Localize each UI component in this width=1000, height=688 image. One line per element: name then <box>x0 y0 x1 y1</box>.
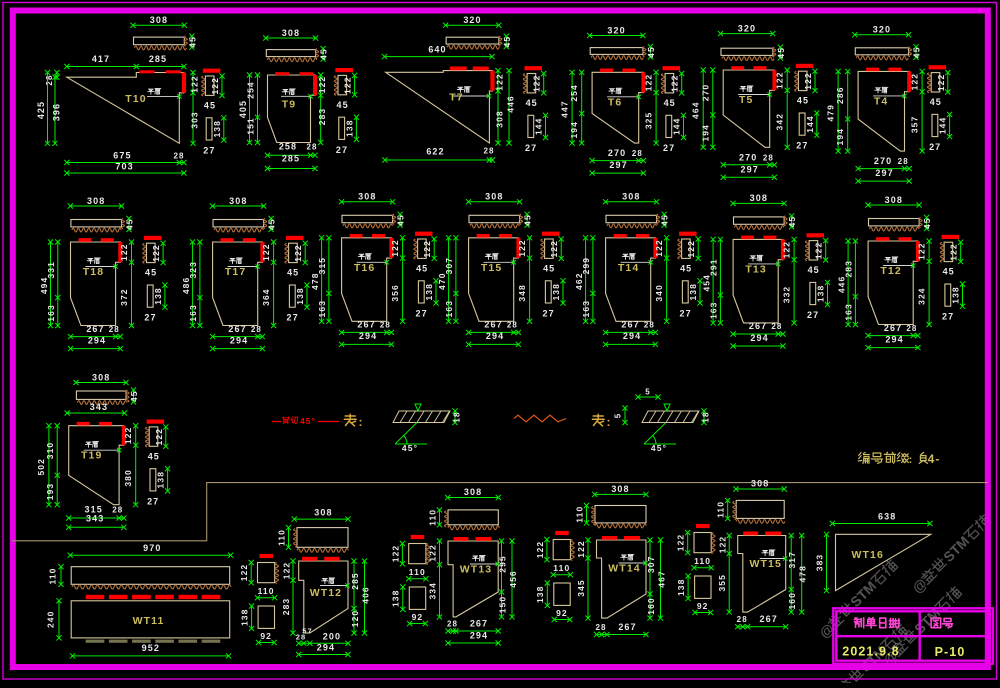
svg-text:295: 295 <box>498 555 508 572</box>
svg-text:T12: T12 <box>880 265 901 277</box>
svg-text:45: 45 <box>267 218 277 230</box>
svg-text:675: 675 <box>113 151 131 161</box>
svg-text:308: 308 <box>282 28 300 38</box>
svg-text:122: 122 <box>936 74 946 91</box>
svg-text:254: 254 <box>569 84 579 101</box>
svg-text:294: 294 <box>486 331 504 341</box>
svg-text:270: 270 <box>739 152 757 162</box>
svg-text:138: 138 <box>688 283 698 300</box>
svg-text:122: 122 <box>239 564 249 581</box>
svg-text:WT16: WT16 <box>851 549 883 561</box>
svg-text:640: 640 <box>428 45 446 55</box>
svg-text:343: 343 <box>90 402 108 412</box>
svg-text:92: 92 <box>412 612 424 622</box>
svg-text:122: 122 <box>917 242 927 259</box>
svg-text:320: 320 <box>873 25 891 35</box>
svg-text:479: 479 <box>826 104 836 121</box>
svg-text:345: 345 <box>576 579 586 596</box>
svg-text:122: 122 <box>190 75 200 92</box>
svg-text:110: 110 <box>276 529 286 546</box>
svg-text:122: 122 <box>686 240 696 257</box>
svg-text:285: 285 <box>282 154 300 164</box>
svg-text:T17: T17 <box>225 266 246 278</box>
svg-text:163: 163 <box>317 300 327 317</box>
svg-text:299: 299 <box>581 257 591 274</box>
svg-text:45: 45 <box>502 36 512 48</box>
svg-text:258: 258 <box>279 142 297 152</box>
svg-text:122: 122 <box>803 72 813 89</box>
svg-text:45: 45 <box>664 98 676 108</box>
svg-text:18: 18 <box>702 411 711 422</box>
svg-text:122: 122 <box>119 243 129 260</box>
svg-text:348: 348 <box>517 284 527 301</box>
svg-text:T19: T19 <box>81 450 102 462</box>
svg-text:27: 27 <box>942 312 954 322</box>
svg-text:122: 122 <box>422 240 432 257</box>
svg-text:297: 297 <box>609 160 627 170</box>
svg-text:28: 28 <box>737 615 748 624</box>
svg-text:110: 110 <box>694 556 711 566</box>
svg-text:122: 122 <box>549 240 559 257</box>
svg-text:122: 122 <box>775 71 785 88</box>
svg-text:122: 122 <box>782 241 792 258</box>
svg-text:T18: T18 <box>83 266 104 278</box>
svg-text:294: 294 <box>750 333 768 343</box>
svg-text:364: 364 <box>261 288 271 305</box>
svg-text:622: 622 <box>426 147 444 157</box>
svg-text:122: 122 <box>293 244 303 261</box>
svg-text:294: 294 <box>470 631 488 641</box>
svg-text:357: 357 <box>910 116 920 133</box>
svg-text:45: 45 <box>187 36 197 48</box>
svg-text:122: 122 <box>281 562 291 579</box>
svg-text:310: 310 <box>45 442 55 459</box>
svg-text:27: 27 <box>525 143 537 153</box>
svg-text:28: 28 <box>507 321 518 330</box>
svg-text:122: 122 <box>261 243 271 260</box>
svg-text:308: 308 <box>751 479 769 489</box>
svg-text:T5: T5 <box>739 94 753 106</box>
svg-text:110: 110 <box>574 506 584 523</box>
svg-text:285: 285 <box>149 54 167 64</box>
svg-text:425: 425 <box>36 101 46 119</box>
svg-text:45: 45 <box>416 263 428 273</box>
svg-text:122: 122 <box>654 239 664 256</box>
svg-text:45: 45 <box>145 268 157 278</box>
svg-text:283: 283 <box>843 260 853 277</box>
svg-text:122: 122 <box>151 244 161 261</box>
svg-text:T14: T14 <box>618 262 639 274</box>
svg-text:28: 28 <box>595 623 606 632</box>
svg-text:342: 342 <box>775 113 785 130</box>
svg-text:308: 308 <box>464 487 482 497</box>
svg-text:638: 638 <box>878 512 896 522</box>
svg-text:163: 163 <box>46 304 56 321</box>
svg-text:297: 297 <box>741 164 759 174</box>
svg-text:308: 308 <box>622 192 640 202</box>
svg-text:45°: 45° <box>651 443 667 453</box>
svg-text:502: 502 <box>36 458 46 475</box>
svg-text:122: 122 <box>390 545 400 562</box>
svg-text:317: 317 <box>787 551 797 568</box>
svg-text:138: 138 <box>295 287 305 304</box>
svg-text:45: 45 <box>808 265 820 275</box>
svg-text:122: 122 <box>495 73 505 90</box>
svg-text:45: 45 <box>336 100 348 110</box>
svg-text:323: 323 <box>188 261 198 278</box>
svg-text:308: 308 <box>750 193 768 203</box>
svg-text:267: 267 <box>618 622 636 632</box>
svg-text:952: 952 <box>142 643 160 653</box>
svg-text:308: 308 <box>885 195 903 205</box>
svg-text:28: 28 <box>380 321 391 330</box>
svg-text:T9: T9 <box>282 99 296 111</box>
svg-text:294: 294 <box>230 335 248 345</box>
svg-text:372: 372 <box>119 288 129 305</box>
svg-text:138: 138 <box>391 590 401 607</box>
svg-text:WT13: WT13 <box>460 564 492 576</box>
svg-text:45: 45 <box>523 214 533 226</box>
svg-text:45°: 45° <box>300 417 316 426</box>
svg-text:92: 92 <box>260 631 272 641</box>
svg-text:45: 45 <box>660 214 670 226</box>
svg-text:28: 28 <box>447 620 458 629</box>
svg-text:57: 57 <box>302 627 313 636</box>
svg-text:160: 160 <box>646 597 656 614</box>
svg-text:45: 45 <box>930 97 942 107</box>
svg-text:267: 267 <box>749 321 767 331</box>
svg-text:320: 320 <box>607 25 625 35</box>
svg-text:138: 138 <box>344 119 354 136</box>
svg-text:122: 122 <box>517 239 527 256</box>
svg-text:122: 122 <box>717 536 727 553</box>
svg-text:28: 28 <box>763 153 774 162</box>
svg-text:138: 138 <box>676 579 686 596</box>
svg-text:343: 343 <box>86 514 104 524</box>
svg-text:294: 294 <box>317 643 335 653</box>
svg-text:45: 45 <box>787 216 797 228</box>
svg-text:307: 307 <box>444 257 454 274</box>
svg-text:267: 267 <box>228 324 246 334</box>
svg-text:WT14: WT14 <box>608 563 640 575</box>
svg-text:307: 307 <box>646 556 656 573</box>
svg-text:138: 138 <box>816 285 826 302</box>
svg-text:27: 27 <box>679 308 691 318</box>
svg-text:138: 138 <box>951 286 961 303</box>
svg-text:163: 163 <box>581 300 591 317</box>
svg-text:122: 122 <box>910 73 920 90</box>
svg-text:27: 27 <box>286 313 298 323</box>
svg-text:27: 27 <box>663 143 675 153</box>
svg-text:396: 396 <box>52 103 62 121</box>
svg-text::: : <box>909 454 914 466</box>
svg-text:150: 150 <box>498 596 508 613</box>
svg-text:297: 297 <box>875 168 893 178</box>
svg-text:294: 294 <box>88 335 106 345</box>
svg-text:308: 308 <box>150 15 168 25</box>
svg-text:200: 200 <box>323 631 341 641</box>
svg-text:28: 28 <box>251 325 262 334</box>
svg-text:5: 5 <box>614 413 623 419</box>
svg-text:240: 240 <box>46 611 56 628</box>
svg-text:27: 27 <box>203 145 215 155</box>
svg-text:138: 138 <box>424 283 434 300</box>
svg-text:332: 332 <box>782 286 792 303</box>
svg-text:456: 456 <box>508 570 518 587</box>
svg-text:28: 28 <box>644 321 655 330</box>
svg-text:110: 110 <box>48 567 58 584</box>
svg-text:120: 120 <box>350 610 360 627</box>
svg-text:T10: T10 <box>125 93 146 105</box>
svg-text:28: 28 <box>483 147 494 156</box>
svg-text:270: 270 <box>700 84 710 101</box>
svg-text:270: 270 <box>608 148 626 158</box>
svg-text:122: 122 <box>210 77 220 94</box>
svg-text:122: 122 <box>317 76 327 93</box>
svg-text:356: 356 <box>390 284 400 301</box>
svg-text:163: 163 <box>444 300 454 317</box>
svg-text:28: 28 <box>306 143 317 152</box>
svg-text:144: 144 <box>938 117 948 134</box>
svg-text:122: 122 <box>390 239 400 256</box>
svg-text:138: 138 <box>212 120 222 137</box>
svg-text:294: 294 <box>885 334 903 344</box>
svg-text:WT11: WT11 <box>133 615 165 627</box>
svg-text:308: 308 <box>229 196 247 206</box>
svg-text:28: 28 <box>632 149 643 158</box>
svg-text:45: 45 <box>148 451 160 461</box>
svg-text:45: 45 <box>396 214 406 226</box>
svg-text:4-: 4- <box>928 452 941 466</box>
svg-text:160: 160 <box>787 592 797 609</box>
svg-text:45°: 45° <box>402 443 418 453</box>
svg-text:27: 27 <box>415 308 427 318</box>
svg-text:406: 406 <box>361 586 371 603</box>
svg-text:138: 138 <box>551 283 561 300</box>
svg-text:308: 308 <box>92 372 110 382</box>
svg-text:45: 45 <box>776 47 786 59</box>
svg-text:P-10: P-10 <box>935 645 966 659</box>
svg-text:45: 45 <box>125 218 135 230</box>
svg-text:254: 254 <box>246 81 256 98</box>
svg-text:110: 110 <box>716 501 726 518</box>
svg-text::: : <box>606 415 611 429</box>
svg-text:122: 122 <box>154 428 164 445</box>
svg-text:464: 464 <box>691 101 701 118</box>
svg-text:5: 5 <box>645 388 651 397</box>
svg-text:447: 447 <box>560 100 570 117</box>
svg-text:110: 110 <box>258 586 275 596</box>
svg-text:122: 122 <box>644 74 654 91</box>
svg-text:294: 294 <box>359 331 377 341</box>
svg-text:144: 144 <box>534 118 544 135</box>
svg-text:405: 405 <box>238 100 248 118</box>
svg-text:163: 163 <box>188 304 198 321</box>
svg-text:380: 380 <box>123 469 133 486</box>
svg-text:383: 383 <box>814 554 824 571</box>
svg-text:27: 27 <box>807 310 819 320</box>
svg-text:970: 970 <box>143 543 161 553</box>
svg-text:267: 267 <box>357 320 375 330</box>
svg-text:45: 45 <box>319 48 329 60</box>
svg-text:WT12: WT12 <box>310 587 342 599</box>
svg-text:267: 267 <box>470 619 488 629</box>
svg-text:138: 138 <box>535 586 545 603</box>
svg-text:45: 45 <box>680 263 692 273</box>
svg-text:WT15: WT15 <box>749 558 781 570</box>
svg-text:283: 283 <box>317 108 327 125</box>
svg-text:308: 308 <box>495 110 505 127</box>
svg-text:144: 144 <box>672 118 682 135</box>
svg-text:28: 28 <box>771 322 782 331</box>
svg-text:315: 315 <box>317 257 327 274</box>
svg-text:45: 45 <box>129 390 139 402</box>
svg-text:194: 194 <box>569 121 579 138</box>
svg-text:334: 334 <box>427 582 437 599</box>
svg-text:110: 110 <box>553 563 570 573</box>
svg-text:151: 151 <box>246 117 256 134</box>
svg-text:308: 308 <box>611 484 629 494</box>
svg-text:703: 703 <box>115 161 133 171</box>
svg-text:122: 122 <box>576 540 586 557</box>
svg-text:45: 45 <box>797 96 809 106</box>
svg-text:122: 122 <box>535 541 545 558</box>
svg-text:122: 122 <box>343 76 353 93</box>
svg-text:92: 92 <box>697 601 709 611</box>
svg-text:45: 45 <box>287 268 299 278</box>
svg-text:27: 27 <box>542 308 554 318</box>
svg-text:270: 270 <box>874 156 892 166</box>
svg-text:27: 27 <box>929 142 941 152</box>
svg-text:27: 27 <box>336 145 348 155</box>
svg-text:27: 27 <box>147 496 159 506</box>
svg-text:138: 138 <box>156 471 166 488</box>
svg-text:294: 294 <box>623 331 641 341</box>
svg-text:340: 340 <box>654 284 664 301</box>
svg-text:110: 110 <box>409 567 426 577</box>
svg-text:331: 331 <box>46 261 56 278</box>
svg-text:193: 193 <box>45 483 55 500</box>
svg-text:325: 325 <box>644 112 654 129</box>
svg-text:163: 163 <box>843 303 853 320</box>
svg-text::: : <box>358 415 363 429</box>
svg-text:446: 446 <box>506 95 516 112</box>
svg-text:45: 45 <box>912 46 922 58</box>
svg-text:92: 92 <box>556 608 568 618</box>
svg-text:267: 267 <box>86 324 104 334</box>
svg-text:18: 18 <box>453 411 462 422</box>
svg-text:308: 308 <box>358 192 376 202</box>
svg-text:194: 194 <box>700 124 710 141</box>
svg-text:144: 144 <box>805 115 815 132</box>
svg-text:267: 267 <box>621 320 639 330</box>
svg-text:467: 467 <box>657 570 667 587</box>
svg-text:138: 138 <box>153 287 163 304</box>
svg-text:308: 308 <box>87 196 105 206</box>
svg-text:27: 27 <box>796 141 808 151</box>
svg-text:163: 163 <box>708 302 718 319</box>
svg-text:320: 320 <box>463 15 481 25</box>
svg-text:194: 194 <box>835 128 845 145</box>
svg-text:267: 267 <box>884 323 902 333</box>
svg-text:45: 45 <box>526 98 538 108</box>
svg-text:285: 285 <box>350 572 360 589</box>
svg-text:122: 122 <box>949 243 959 260</box>
svg-text:286: 286 <box>835 86 845 103</box>
svg-text:355: 355 <box>717 574 727 591</box>
svg-text:417: 417 <box>92 54 110 64</box>
svg-text:45: 45 <box>646 46 656 58</box>
svg-text:283: 283 <box>281 598 291 615</box>
svg-text:122: 122 <box>814 242 824 259</box>
svg-text:28: 28 <box>906 324 917 333</box>
svg-text:T15: T15 <box>481 262 502 274</box>
svg-text:45: 45 <box>943 267 955 277</box>
svg-text:28: 28 <box>173 152 184 161</box>
svg-text:324: 324 <box>917 287 927 304</box>
svg-text:45: 45 <box>204 100 216 110</box>
svg-text:45: 45 <box>543 263 555 273</box>
svg-text:T4: T4 <box>874 95 888 107</box>
svg-text:28: 28 <box>112 505 123 514</box>
svg-text:122: 122 <box>123 427 133 444</box>
svg-text:138: 138 <box>240 609 250 626</box>
svg-text:2021.9.8: 2021.9.8 <box>842 645 899 659</box>
svg-text:308: 308 <box>485 192 503 202</box>
svg-text:320: 320 <box>738 23 756 33</box>
svg-text:291: 291 <box>708 258 718 275</box>
svg-text:478: 478 <box>798 565 808 582</box>
svg-text:T6: T6 <box>608 96 622 108</box>
svg-text:303: 303 <box>190 111 200 128</box>
svg-text:T13: T13 <box>745 263 766 275</box>
svg-text:110: 110 <box>427 509 437 526</box>
svg-text:28: 28 <box>109 325 120 334</box>
svg-text:T16: T16 <box>354 262 375 274</box>
svg-text:308: 308 <box>314 507 332 517</box>
svg-text:27: 27 <box>144 313 156 323</box>
svg-text:122: 122 <box>670 75 680 92</box>
svg-text:122: 122 <box>532 75 542 92</box>
svg-text:T7: T7 <box>449 92 463 104</box>
svg-text:28: 28 <box>898 157 909 166</box>
svg-text:267: 267 <box>484 320 502 330</box>
svg-text:45: 45 <box>922 217 932 229</box>
svg-text:267: 267 <box>760 614 778 624</box>
svg-text:122: 122 <box>676 534 686 551</box>
